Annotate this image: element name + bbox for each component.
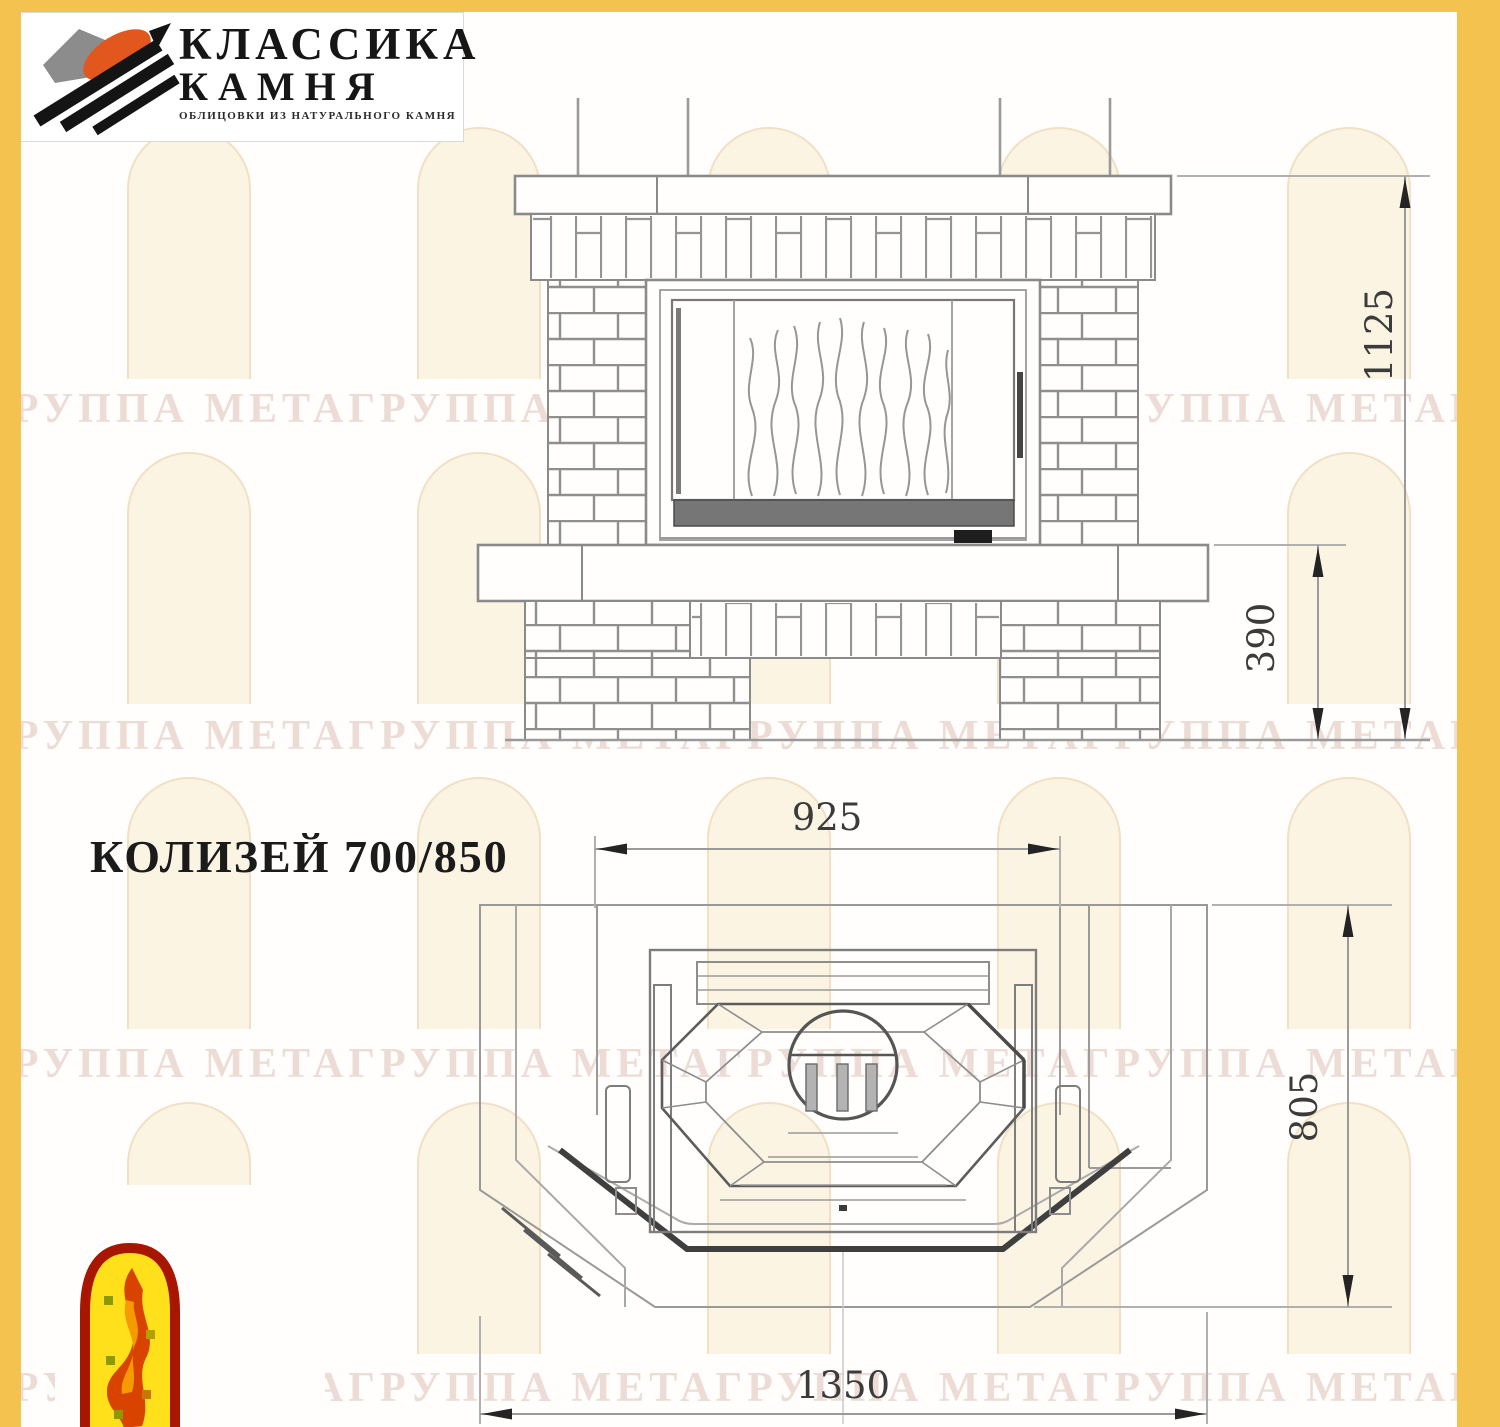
company-logo-text: КЛАССИКА КАМНЯ ОБЛИЦОВКИ ИЗ НАТУРАЛЬНОГО… bbox=[179, 21, 481, 122]
company-logo-graphic bbox=[21, 13, 181, 139]
dimension-label-plan-top-width: 925 bbox=[792, 796, 863, 839]
grate-bar bbox=[674, 500, 1014, 526]
company-name-line2: КАМНЯ bbox=[179, 67, 481, 107]
grille-bar bbox=[837, 1064, 848, 1111]
plan-dimensions: 925 805 1350 bbox=[480, 796, 1392, 1424]
dimension-label-plan-total-width: 1350 bbox=[796, 1364, 890, 1407]
door-hinge bbox=[676, 308, 681, 494]
metagroup-emblem bbox=[80, 1240, 180, 1427]
drawing-sheet: ГРУППА МЕТАГРУППА МЕТАГРУППА МЕТАГРУППА … bbox=[21, 12, 1457, 1427]
chimney-pipes bbox=[578, 98, 1110, 176]
company-name-line1: КЛАССИКА bbox=[179, 21, 481, 67]
door-handle bbox=[1017, 372, 1023, 458]
model-title: КОЛИЗЕЙ 700/850 bbox=[90, 830, 509, 883]
dimension-label-base-height: 390 bbox=[1240, 603, 1283, 674]
grille-bar bbox=[806, 1064, 817, 1111]
hearth-shelf bbox=[478, 545, 1208, 601]
front-view-drawing bbox=[478, 98, 1430, 740]
grille-bar bbox=[866, 1064, 877, 1111]
company-logo: КЛАССИКА КАМНЯ ОБЛИЦОВКИ ИЗ НАТУРАЛЬНОГО… bbox=[21, 12, 464, 142]
front-dimensions: 1125 390 bbox=[1177, 176, 1430, 740]
dimension-label-plan-depth: 805 bbox=[1283, 1072, 1326, 1143]
ash-vent bbox=[954, 530, 992, 543]
mantel-shelf bbox=[515, 176, 1171, 214]
company-caption: ОБЛИЦОВКИ ИЗ НАТУРАЛЬНОГО КАМНЯ bbox=[179, 110, 481, 122]
plan-view-drawing bbox=[480, 905, 1207, 1424]
dimension-label-total-height: 1125 bbox=[1358, 288, 1401, 382]
page: { "logo": { "line1": "КЛАССИКА", "line2"… bbox=[0, 0, 1500, 1427]
